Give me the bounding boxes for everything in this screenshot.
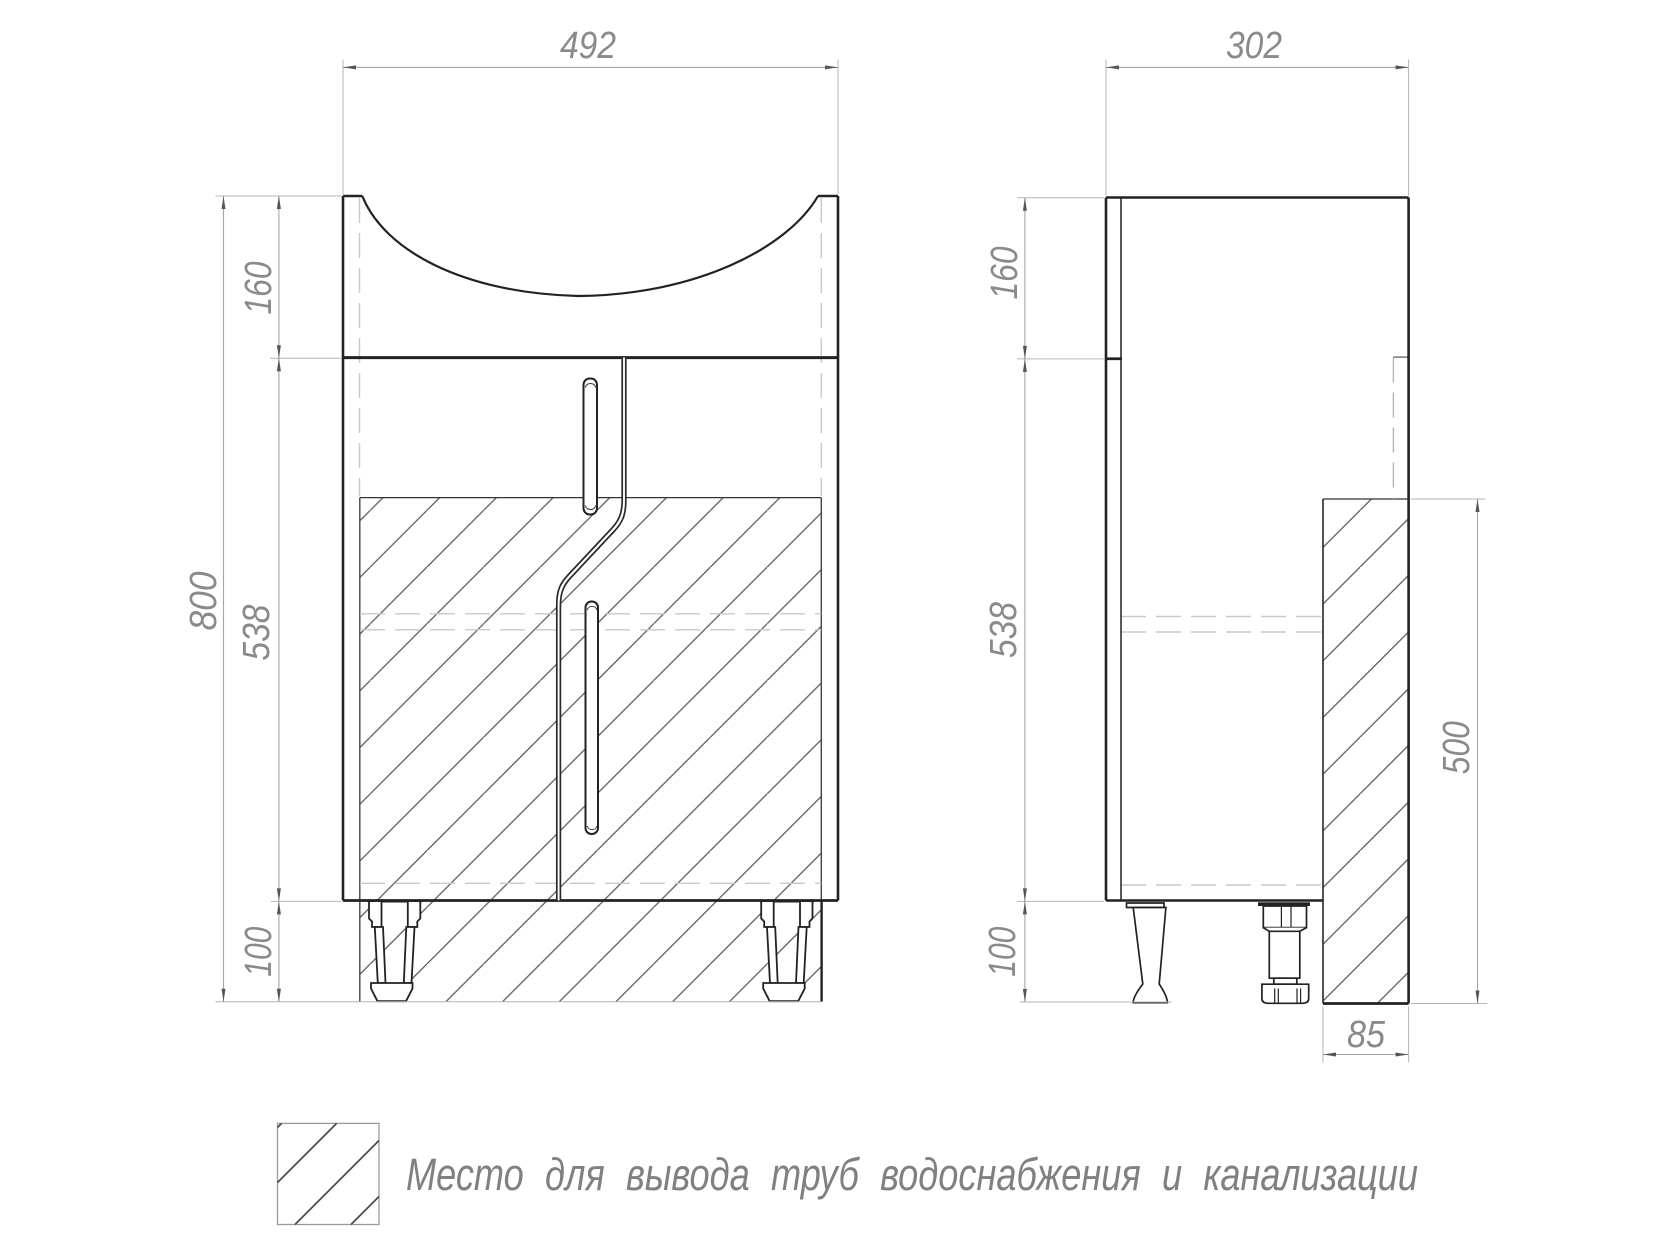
svg-text:538: 538 [236, 605, 278, 661]
svg-text:500: 500 [1436, 721, 1478, 774]
svg-text:538: 538 [983, 602, 1025, 658]
svg-text:160: 160 [984, 247, 1026, 300]
svg-text:85: 85 [1347, 1014, 1386, 1056]
svg-text:302: 302 [1226, 25, 1282, 67]
svg-text:100: 100 [238, 927, 280, 977]
svg-text:160: 160 [238, 262, 280, 315]
svg-text:492: 492 [560, 25, 616, 67]
svg-text:Место для вывода труб водоснаб: Место для вывода труб водоснабжения и ка… [406, 1149, 1418, 1200]
svg-text:100: 100 [982, 927, 1024, 977]
svg-text:800: 800 [183, 572, 225, 631]
